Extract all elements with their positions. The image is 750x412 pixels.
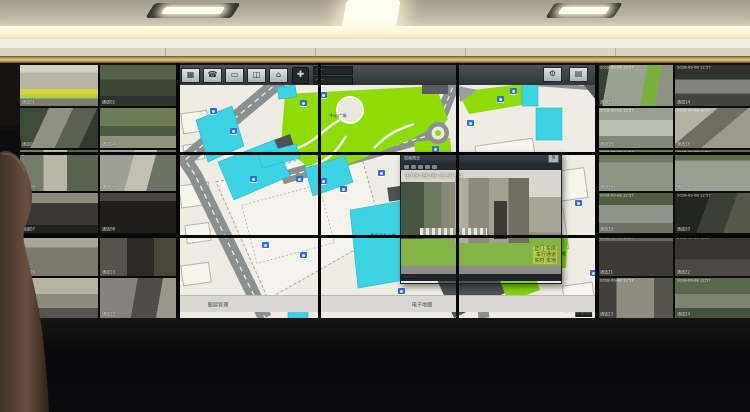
feed-timestamp: 2018-09-08 12:57: [677, 279, 711, 283]
foreground-hand: [0, 130, 62, 412]
cove-light: [0, 26, 750, 39]
gold-trim: [0, 56, 750, 63]
map-status-text: ·· ··· ····: [575, 312, 592, 317]
feed-label: 通道10: [102, 271, 115, 275]
map-camera-icon[interactable]: [320, 92, 327, 98]
feed-label: 通道15: [600, 143, 613, 147]
feed-label: 通道19: [600, 228, 613, 232]
feed-timestamp: 2018-09-08 12:57: [677, 66, 711, 70]
layers-button[interactable]: ▤: [569, 67, 588, 82]
map-camera-icon[interactable]: [296, 176, 303, 182]
map-camera-icon[interactable]: [230, 128, 237, 134]
monitor-bezel: [456, 63, 459, 320]
feed-label: 通道18: [677, 186, 690, 190]
tab-emap[interactable]: 电子地图: [412, 300, 432, 308]
feed-label: 通道17: [600, 186, 613, 190]
camera-feed[interactable]: 通道02: [100, 65, 178, 106]
feed-label: 通道24: [677, 313, 690, 317]
right-camera-grid: 通道132018-09-08 12:57通道142018-09-08 12:57…: [598, 65, 750, 318]
camera-feed[interactable]: 通道152018-09-08 12:57: [598, 108, 673, 149]
video-doorway: [494, 201, 507, 238]
ceiling-fascia: [0, 39, 750, 48]
map-camera-icon[interactable]: [210, 108, 217, 114]
feed-label: 通道02: [102, 101, 115, 105]
camera-feed[interactable]: 通道242018-09-08 12:57: [675, 278, 750, 319]
map-camera-icon[interactable]: [250, 176, 257, 182]
display-button[interactable]: ▭: [225, 68, 244, 83]
monitor-bezel: [176, 63, 180, 320]
camera-feed[interactable]: 通道222018-09-08 12:57: [675, 235, 750, 276]
feed-label: 通道20: [677, 228, 690, 232]
feed-label: 通道16: [677, 143, 690, 147]
map-camera-icon[interactable]: [497, 96, 504, 102]
map-camera-icon[interactable]: [340, 186, 347, 192]
camera-feed[interactable]: 通道212018-09-08 12:57: [598, 235, 673, 276]
popup-toolbar[interactable]: [401, 163, 561, 170]
feed-timestamp: 2018-09-08 12:57: [600, 66, 634, 70]
feed-label: 通道06: [102, 186, 115, 190]
video-wall: 通道01通道02通道03通道04通道05通道06通道07通道08通道09通道10…: [0, 63, 750, 320]
monitor-bezel: [20, 235, 750, 238]
camera-feed[interactable]: 通道10: [100, 235, 178, 276]
map-label: 中心广场: [330, 114, 347, 118]
camera-feed[interactable]: 通道04: [100, 108, 178, 149]
feed-label: 通道21: [600, 271, 613, 275]
camera-feed[interactable]: 通道202018-09-08 12:57: [675, 193, 750, 234]
control-room-photo: 通道01通道02通道03通道04通道05通道06通道07通道08通道09通道10…: [0, 0, 750, 412]
feed-label: 通道14: [677, 101, 690, 105]
person-button[interactable]: ⌂: [269, 68, 288, 83]
camera-feed[interactable]: 通道08: [100, 193, 178, 234]
room-floor: [0, 318, 750, 412]
camera-feed[interactable]: 通道162018-09-08 12:57: [675, 108, 750, 149]
gis-map-screen[interactable]: ▦☎▭◫⌂ ✚ ····· ····· ⚙▤: [178, 65, 596, 318]
map-camera-icon[interactable]: [300, 100, 307, 106]
map-camera-icon[interactable]: [300, 252, 307, 258]
feed-timestamp: 2018-09-08 12:57: [677, 109, 711, 113]
monitor-bezel: [20, 152, 750, 155]
video-popup-window[interactable]: 视频预览 × 2018-09-08 12:57:04 正门 东侧 车行通道 实时…: [400, 152, 562, 284]
ceiling-light-icon: [145, 3, 240, 18]
popup-video-feed[interactable]: 2018-09-08 12:57:04 正门 东侧 车行通道 实时 本地: [401, 170, 561, 274]
ceiling-light-icon: [545, 3, 622, 18]
feed-label: 通道01: [22, 101, 35, 105]
camera-feed[interactable]: 通道182018-09-08 12:57: [675, 150, 750, 191]
feed-timestamp: 2018-09-08 12:57: [677, 194, 711, 198]
tab-layers[interactable]: 图层管理: [208, 300, 228, 308]
map-tab-bar: 图层管理 电子地图: [178, 295, 596, 312]
monitor-button[interactable]: ▦: [181, 68, 200, 83]
video-osd-text: 正门 东侧 车行通道 实时 本地: [533, 246, 557, 264]
gear-button[interactable]: ⚙: [543, 67, 562, 82]
phone-button[interactable]: ☎: [203, 68, 222, 83]
camera-feed[interactable]: 通道172018-09-08 12:57: [598, 150, 673, 191]
camera-feed[interactable]: 通道12: [100, 278, 178, 319]
map-camera-icon[interactable]: [320, 178, 327, 184]
monitor-bezel: [595, 63, 599, 320]
popup-title: 视频预览: [404, 155, 420, 161]
monitor-bezel: [318, 63, 321, 320]
camera-feed[interactable]: 通道232018-09-08 12:57: [598, 278, 673, 319]
feed-label: 通道22: [677, 271, 690, 275]
ceiling: [0, 0, 750, 56]
popup-statusbar: ·· ···· ··: [401, 274, 561, 281]
map-camera-icon[interactable]: [398, 288, 405, 294]
feed-label: 通道08: [102, 228, 115, 232]
map-camera-icon[interactable]: [467, 120, 474, 126]
feed-timestamp: 2018-09-08 12:57: [600, 194, 634, 198]
map-camera-icon[interactable]: [510, 88, 517, 94]
feed-label: 通道12: [102, 313, 115, 317]
feed-timestamp: 2018-09-08 12:57: [600, 279, 634, 283]
map-camera-icon[interactable]: [262, 242, 269, 248]
feed-label: 通道23: [600, 313, 613, 317]
map-toolbar: ▦☎▭◫⌂ ✚ ····· ····· ⚙▤: [178, 65, 596, 85]
camera-feed[interactable]: 通道142018-09-08 12:57: [675, 65, 750, 106]
wall-panels: [0, 48, 750, 56]
feed-timestamp: 2018-09-08 12:57: [600, 109, 634, 113]
feed-label: 通道13: [600, 101, 613, 105]
door-button[interactable]: ◫: [247, 68, 266, 83]
camera-feed[interactable]: 通道132018-09-08 12:57: [598, 65, 673, 106]
video-timestamp: 2018-09-08 12:57:04: [405, 173, 462, 179]
pan-dpad[interactable]: ✚: [292, 67, 309, 84]
camera-feed[interactable]: 通道06: [100, 150, 178, 191]
feed-label: 通道04: [102, 143, 115, 147]
camera-feed[interactable]: 通道192018-09-08 12:57: [598, 193, 673, 234]
map-camera-icon[interactable]: [378, 170, 385, 176]
map-camera-icon[interactable]: [575, 200, 582, 206]
camera-feed[interactable]: 通道01: [20, 65, 98, 106]
